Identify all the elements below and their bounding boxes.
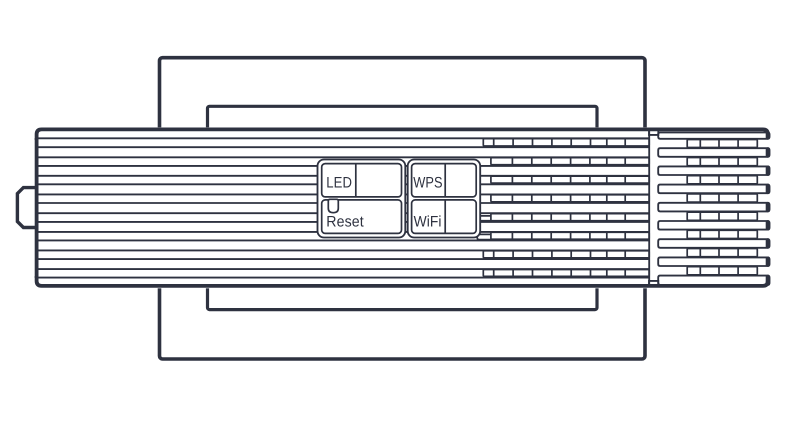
svg-text:LED: LED [326, 175, 352, 192]
svg-text:WPS: WPS [413, 175, 442, 192]
svg-text:Reset: Reset [326, 214, 364, 231]
svg-text:WiFi: WiFi [414, 214, 442, 231]
